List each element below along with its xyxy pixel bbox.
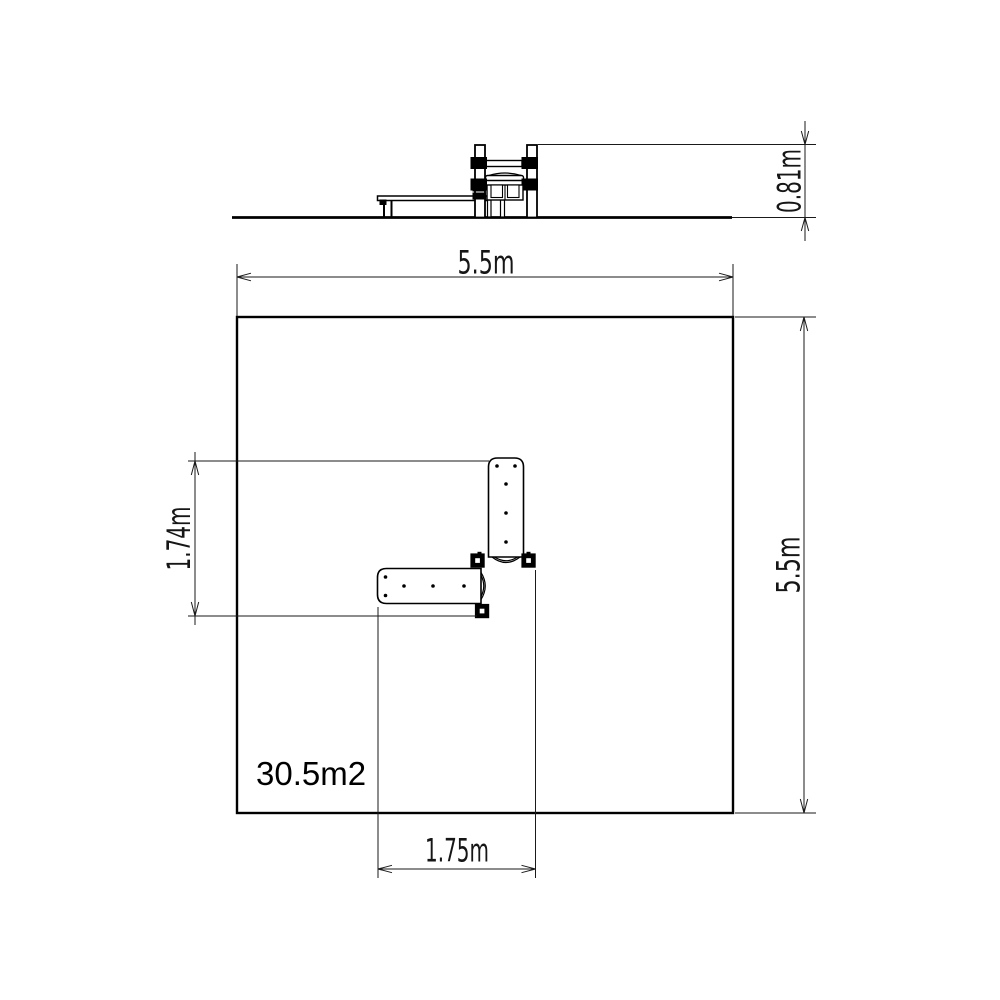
seat-leg-left <box>488 200 492 217</box>
seat-box-inner-left <box>491 185 503 198</box>
plan-bench-vertical-endcap <box>492 557 520 563</box>
connector-post-right <box>524 556 534 566</box>
bench-top-elevation <box>378 196 488 201</box>
dim-equipment-height: 0.81m <box>538 121 816 241</box>
technical-drawing-page: 5.5m 5.5m 0.81m 1.74m 1.75m <box>0 0 1000 1000</box>
dim-label-equipment-depth: 1.74m <box>160 507 198 571</box>
connector-post-left <box>473 556 483 566</box>
dim-plan-width: 5.5m <box>237 244 733 317</box>
top-bar-clamp-left <box>471 157 488 169</box>
dim-label-plan-width: 5.5m <box>458 244 515 282</box>
elevation-view <box>232 145 732 218</box>
dim-label-equipment-width: 1.75m <box>425 832 489 870</box>
drawing-canvas: 5.5m 5.5m 0.81m 1.74m 1.75m <box>0 0 1000 1000</box>
connector-post-bottom <box>477 606 487 616</box>
bench-clamp-lower <box>473 193 487 200</box>
bench-clamp-upper <box>473 186 487 192</box>
seat-clamp-right <box>522 179 539 191</box>
dim-label-equipment-height: 0.81m <box>771 149 809 213</box>
top-bar-clamp-right <box>522 157 539 169</box>
seat-plate <box>486 176 524 181</box>
dim-label-plan-depth: 5.5m <box>770 537 808 594</box>
safety-area-label: 30.5m2 <box>256 755 366 792</box>
plan-view <box>237 317 733 813</box>
dim-plan-depth: 5.5m <box>735 317 816 813</box>
seat-leg-right <box>501 200 505 217</box>
seat-box-inner-right <box>508 185 520 198</box>
top-bar <box>486 161 522 167</box>
safety-area-square <box>237 317 733 813</box>
